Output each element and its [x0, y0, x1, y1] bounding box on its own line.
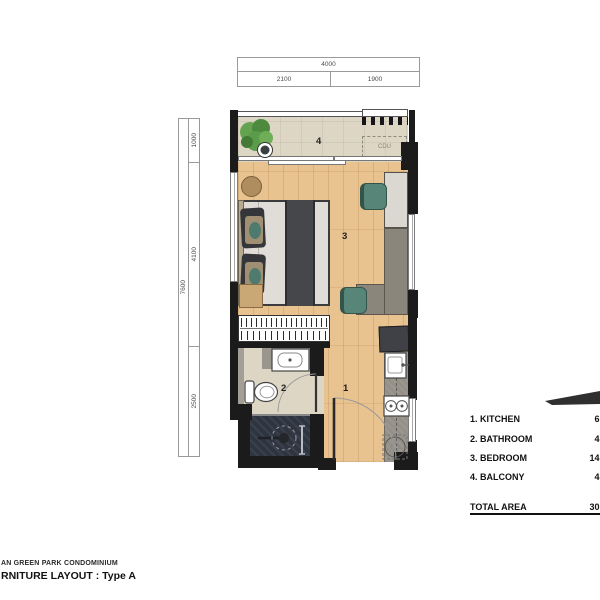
- room-label-bathroom: 2: [281, 383, 286, 394]
- dim-left-seg1: 1000: [188, 118, 200, 163]
- wall-segment: [230, 282, 238, 348]
- legend-row: 2. BATHROOM 4.6: [470, 434, 600, 444]
- room-label-bedroom: 3: [342, 231, 347, 242]
- wall-segment: [310, 414, 324, 458]
- bedside-round-table: [241, 176, 262, 197]
- legend-row: 3. BEDROOM 14.5: [470, 453, 600, 463]
- shower-floor: [250, 414, 310, 458]
- louver-ledge: [362, 109, 408, 117]
- legend-area: 6.5: [535, 414, 600, 424]
- legend-area: 4.7: [535, 472, 600, 482]
- sliding-door-panel: [334, 156, 402, 161]
- bedroom-window-right: [408, 214, 415, 290]
- legend-total-row: TOTAL AREA 30.3: [470, 502, 600, 512]
- legend-total-rule: [470, 513, 600, 515]
- wall-segment: [408, 318, 417, 400]
- legend-row: 4. BALCONY 4.7: [470, 472, 600, 482]
- dim-top-seg2: 1900: [330, 71, 420, 87]
- project-title: AN GREEN PARK CONDOMINIUM: [1, 560, 118, 567]
- wall-segment: [318, 458, 336, 470]
- refrigerator: [379, 325, 410, 352]
- dim-left-seg3: 2500: [188, 346, 200, 457]
- layout-title: RNITURE LAYOUT : Type A: [1, 570, 136, 582]
- floorplan-sheet: { "dimensions": { "top": {"total": "4000…: [0, 0, 600, 600]
- wall-segment: [408, 290, 418, 318]
- bathroom-door-threshold: [310, 374, 324, 414]
- pillow-teal: [249, 268, 261, 285]
- wall-segment: [238, 456, 318, 468]
- kitchen-counter-centerline: [396, 353, 397, 461]
- desk: [384, 228, 408, 315]
- legend-name: 3. BEDROOM: [470, 453, 527, 463]
- legend-name: 4. BALCONY: [470, 472, 525, 482]
- legend-row: 1. KITCHEN 6.5: [470, 414, 600, 424]
- bed-throw-blanket: [285, 200, 315, 306]
- room-label-kitchen: 1: [343, 383, 348, 394]
- wardrobe-rail: [240, 328, 328, 329]
- wall-segment: [408, 440, 417, 454]
- legend-area: 14.5: [535, 453, 600, 463]
- wardrobe-hangers: [241, 331, 327, 340]
- vanity-counter: [262, 348, 310, 369]
- legend-total-value: 30.3: [535, 502, 600, 512]
- legend-name: 2. BATHROOM: [470, 434, 532, 444]
- wall-segment: [409, 110, 415, 144]
- wall-segment: [230, 348, 238, 406]
- cabinet: [384, 172, 408, 228]
- dim-left-seg2: 4100: [188, 162, 200, 347]
- desk-chair: [340, 287, 367, 314]
- bedroom-window-left: [230, 172, 238, 282]
- pillow-teal: [249, 222, 261, 239]
- desk-chair: [360, 183, 387, 210]
- bathroom-wall-tile: [238, 348, 244, 406]
- clipped-artifact: [545, 391, 600, 405]
- wall-segment: [394, 452, 418, 470]
- wall-segment: [408, 170, 418, 214]
- foot-nightstand: [239, 284, 263, 308]
- dim-top-total: 4000: [237, 57, 420, 72]
- wall-segment: [230, 110, 238, 172]
- wall-segment: [401, 142, 418, 170]
- legend-name: 1. KITCHEN: [470, 414, 520, 424]
- kitchen-window-right: [408, 398, 416, 442]
- dim-top-seg1: 2100: [237, 71, 331, 87]
- wall-segment: [310, 342, 324, 376]
- wardrobe-hangers: [241, 318, 327, 327]
- room-label-balcony: 4: [316, 136, 321, 147]
- legend-total-label: TOTAL AREA: [470, 502, 527, 512]
- balcony-railing: [238, 111, 362, 117]
- louver-ticks: [362, 117, 408, 125]
- legend-area: 4.6: [535, 434, 600, 444]
- cdu-label: CDU: [378, 144, 391, 150]
